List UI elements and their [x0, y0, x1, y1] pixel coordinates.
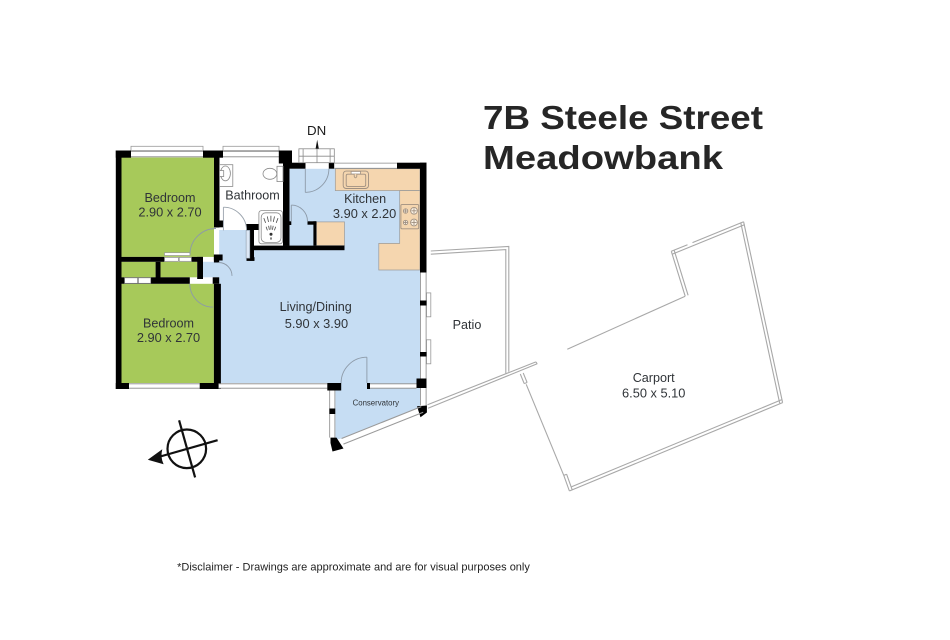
svg-text:7B Steele Street: 7B Steele Street [483, 100, 763, 137]
svg-text:Patio: Patio [453, 318, 482, 332]
svg-text:2.90 x 2.70: 2.90 x 2.70 [138, 205, 201, 220]
svg-text:Living/Dining: Living/Dining [280, 300, 352, 314]
svg-text:DN: DN [307, 123, 326, 138]
svg-text:Conservatory: Conservatory [353, 398, 399, 407]
svg-text:6.50 x 5.10: 6.50 x 5.10 [622, 386, 685, 401]
svg-text:2.90 x 2.70: 2.90 x 2.70 [137, 330, 200, 345]
svg-text:Bedroom: Bedroom [143, 316, 194, 330]
svg-text:5.90 x 3.90: 5.90 x 3.90 [285, 316, 348, 331]
svg-text:Bathroom: Bathroom [225, 189, 280, 203]
svg-text:Meadowbank: Meadowbank [483, 140, 723, 177]
svg-text:3.90 x 2.20: 3.90 x 2.20 [333, 206, 396, 221]
svg-text:Carport: Carport [633, 371, 675, 385]
svg-text:Bedroom: Bedroom [144, 191, 195, 205]
svg-text:*Disclaimer - Drawings are app: *Disclaimer - Drawings are approximate a… [177, 561, 530, 573]
svg-text:Kitchen: Kitchen [344, 192, 386, 206]
